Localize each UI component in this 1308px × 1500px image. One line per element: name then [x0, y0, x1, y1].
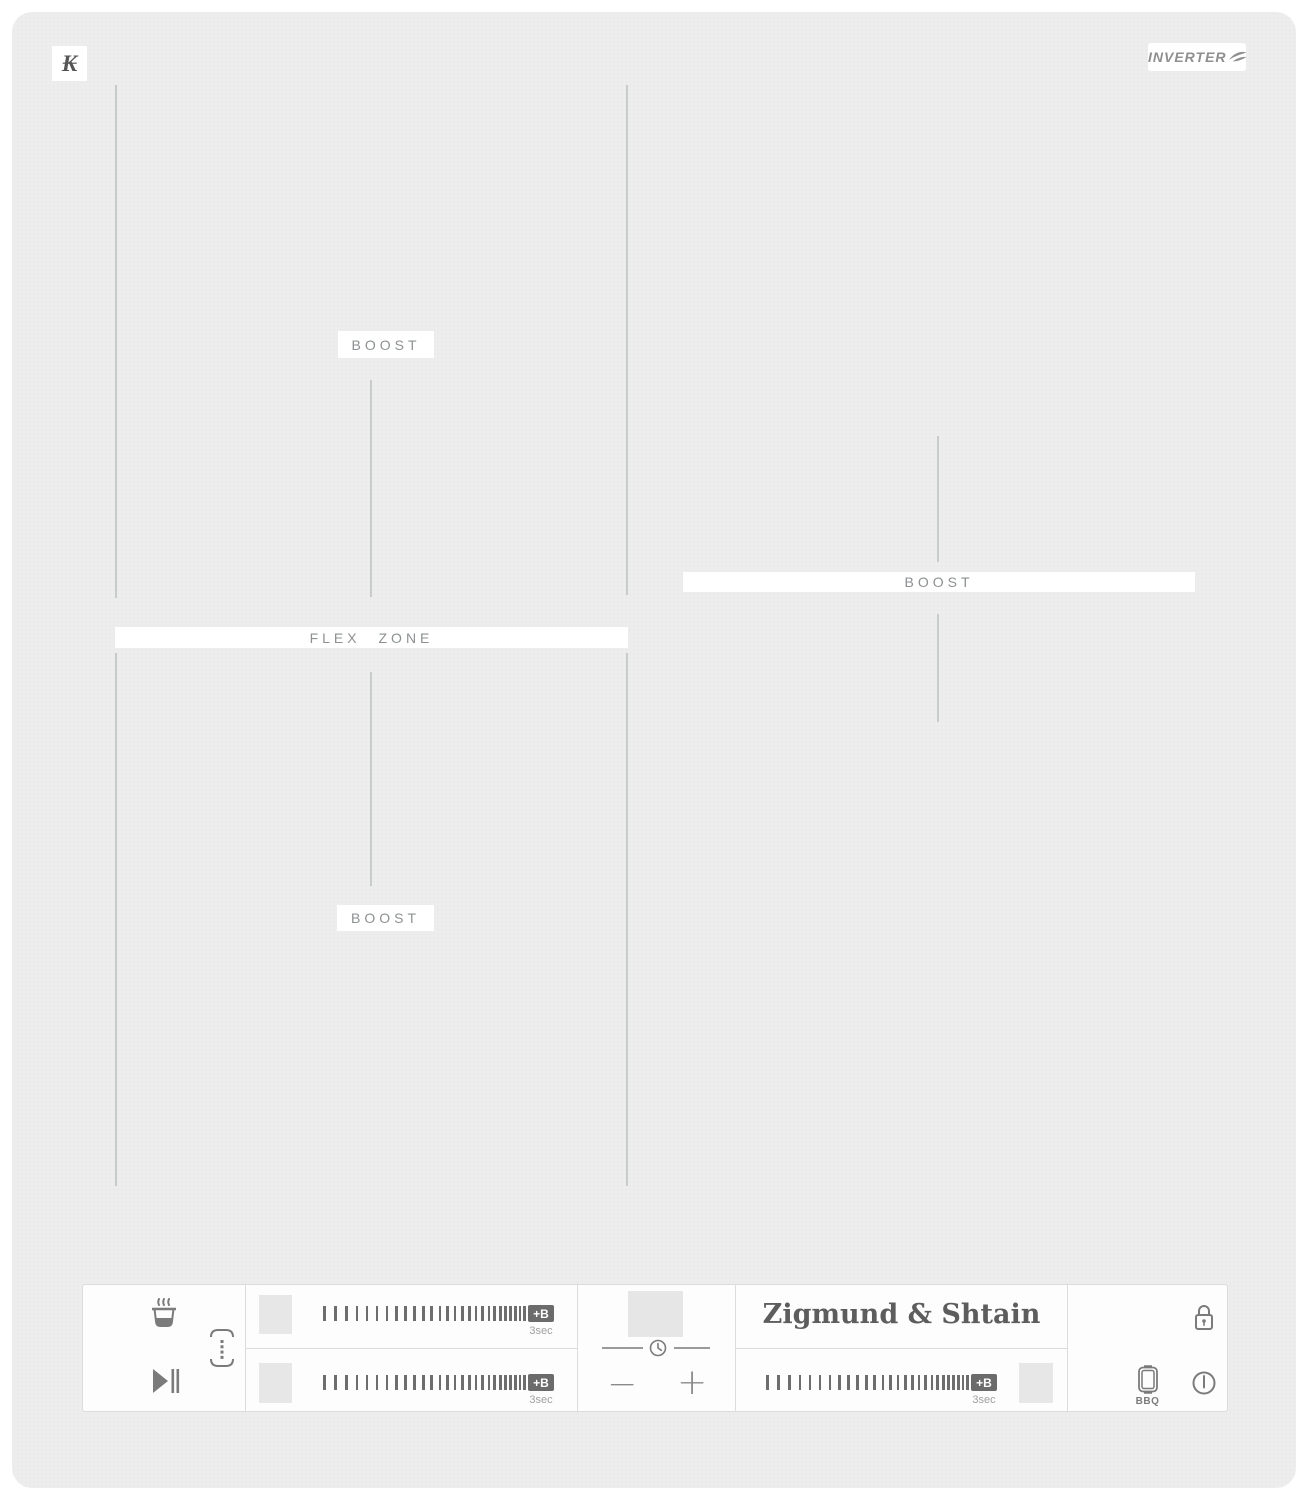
inverter-swoosh-icon [1229, 47, 1246, 67]
keep-warm-button[interactable] [146, 1297, 182, 1331]
slider-tick [323, 1306, 326, 1321]
slider-tick [430, 1375, 433, 1390]
slider-tick [889, 1375, 892, 1390]
flex-front-boost-hint-text: 3sec [529, 1325, 552, 1337]
slider-tick [766, 1375, 769, 1390]
timer-plus-button[interactable]: + [677, 1365, 707, 1401]
inverter-badge: INVERTER [1148, 43, 1246, 71]
slider-tick [488, 1306, 491, 1321]
slider-tick [395, 1375, 398, 1390]
slider-tick [882, 1375, 885, 1390]
slider-tick [962, 1375, 965, 1390]
slider-tick [847, 1375, 850, 1390]
slider-tick [799, 1375, 802, 1390]
slider-tick [931, 1375, 934, 1390]
slider-tick [829, 1375, 832, 1390]
slider-tick [422, 1375, 425, 1390]
bridge-flex-icon [209, 1327, 235, 1369]
right-zone-boost-badge-text: +B [976, 1376, 992, 1390]
child-lock-button[interactable] [1192, 1302, 1216, 1332]
slider-tick [345, 1375, 348, 1390]
slider-tick [461, 1375, 464, 1390]
slider-tick [323, 1375, 326, 1390]
slider-tick [865, 1375, 868, 1390]
slider-tick [376, 1375, 379, 1390]
right-zone-boost-hint-text: 3sec [972, 1394, 995, 1406]
slider-tick [514, 1375, 517, 1390]
timer-line-left [602, 1347, 643, 1349]
right-slider-divider [736, 1348, 1067, 1349]
timer-line-right [674, 1347, 710, 1349]
slider-tick [356, 1375, 359, 1390]
slider-tick [475, 1375, 478, 1390]
slider-tick [454, 1306, 457, 1321]
cooktop-surface [12, 12, 1296, 1488]
slider-tick [952, 1375, 955, 1390]
slider-tick [334, 1375, 337, 1390]
slider-tick [481, 1306, 484, 1321]
boost-label-top-left-text: BOOST [351, 337, 420, 353]
right-zone-power-slider[interactable] [766, 1375, 969, 1390]
flex-front-boost-badge[interactable]: +B [528, 1305, 554, 1322]
brand-logo: Zigmund & Shtain [735, 1299, 1068, 1330]
slider-tick [936, 1375, 939, 1390]
slider-tick [966, 1375, 969, 1390]
slider-tick [334, 1306, 337, 1321]
slider-tick [493, 1375, 496, 1390]
bbq-button[interactable]: BBQ [1131, 1363, 1164, 1407]
slider-tick [404, 1375, 407, 1390]
slider-tick [918, 1375, 921, 1390]
slider-tick [446, 1306, 449, 1321]
slider-tick [788, 1375, 791, 1390]
slider-tick [386, 1375, 389, 1390]
cooktop: ₭ INVERTER BOOST FLEX ZONE BOOST BOOST [0, 0, 1308, 1500]
slider-tick [413, 1375, 416, 1390]
timer-indicator [649, 1339, 667, 1357]
boost-label-right: BOOST [683, 572, 1195, 592]
control-panel: +B 3sec +B 3sec − + [82, 1284, 1228, 1412]
slider-tick [499, 1306, 502, 1321]
inverter-label: INVERTER [1148, 49, 1227, 65]
slider-tick [345, 1306, 348, 1321]
slider-tick [947, 1375, 950, 1390]
timer-minus-button[interactable]: − [607, 1367, 637, 1403]
right-zone-pad[interactable] [1019, 1363, 1053, 1403]
right-zone-boost-badge[interactable]: +B [971, 1374, 997, 1391]
boost-label-bottom-left-text: BOOST [351, 910, 420, 926]
flex-rear-boost-badge[interactable]: +B [528, 1374, 554, 1391]
slider-tick [439, 1306, 442, 1321]
slider-tick [499, 1375, 502, 1390]
slider-tick [509, 1306, 512, 1321]
pause-resume-button[interactable] [150, 1367, 180, 1395]
play-pause-icon [150, 1367, 180, 1395]
slider-tick [519, 1306, 522, 1321]
flex-front-power-slider[interactable] [323, 1306, 526, 1321]
slider-tick [838, 1375, 841, 1390]
pot-steam-icon [146, 1297, 182, 1331]
right-zone-center-line-top [937, 436, 939, 562]
flex-rear-zone-pad[interactable] [259, 1363, 292, 1403]
slider-tick [481, 1375, 484, 1390]
slider-tick [413, 1306, 416, 1321]
slider-tick [819, 1375, 822, 1390]
flex-front-boost-hint: 3sec [528, 1325, 554, 1337]
slider-tick [523, 1306, 526, 1321]
flex-zone-bottom-center-line [370, 672, 372, 886]
right-zone-boost-hint: 3sec [971, 1394, 997, 1406]
slider-tick [439, 1375, 442, 1390]
slider-tick [856, 1375, 859, 1390]
slider-tick [514, 1306, 517, 1321]
slider-tick [873, 1375, 876, 1390]
slider-tick [454, 1375, 457, 1390]
slider-tick [504, 1306, 507, 1321]
bbq-icon [1132, 1364, 1164, 1395]
flex-zone-left-line-top [115, 85, 117, 598]
flex-zone-top-center-line [370, 380, 372, 597]
slider-tick [924, 1375, 927, 1390]
flex-rear-power-slider[interactable] [323, 1375, 526, 1390]
plus-label: + [677, 1362, 707, 1403]
boost-label-top-left: BOOST [338, 331, 434, 358]
flex-zone-left-line-bottom [115, 653, 117, 1186]
slider-tick [493, 1306, 496, 1321]
flex-zone-right-line-top [626, 85, 628, 595]
flex-zone-label-text: FLEX ZONE [310, 630, 434, 646]
slider-tick [468, 1375, 471, 1390]
flex-front-zone-pad[interactable] [259, 1295, 292, 1334]
slider-tick [504, 1375, 507, 1390]
slider-tick [523, 1375, 526, 1390]
power-icon [1191, 1370, 1217, 1396]
bbq-label: BBQ [1136, 1396, 1160, 1407]
timer-display [628, 1291, 683, 1337]
flex-rear-boost-hint: 3sec [528, 1394, 554, 1406]
slider-tick [488, 1375, 491, 1390]
power-button[interactable] [1191, 1370, 1217, 1396]
flex-front-boost-badge-text: +B [533, 1307, 549, 1321]
right-zone-center-line-bottom [937, 614, 939, 722]
slider-tick [468, 1306, 471, 1321]
minus-label: − [607, 1364, 637, 1405]
brand-monogram: ₭ [52, 46, 87, 81]
slider-tick [777, 1375, 780, 1390]
slider-tick [404, 1306, 407, 1321]
slider-tick [395, 1306, 398, 1321]
flex-slider-divider [246, 1348, 577, 1349]
clock-icon [649, 1339, 667, 1357]
lock-icon [1192, 1302, 1216, 1332]
slider-tick [376, 1306, 379, 1321]
flex-slider-group [245, 1284, 578, 1412]
slider-tick [509, 1375, 512, 1390]
slider-tick [430, 1306, 433, 1321]
slider-tick [386, 1306, 389, 1321]
boost-label-bottom-left: BOOST [337, 905, 434, 931]
slider-tick [446, 1375, 449, 1390]
slider-tick [911, 1375, 914, 1390]
slider-tick [897, 1375, 900, 1390]
brand-logo-text: Zigmund & Shtain [763, 1299, 1041, 1330]
bridge-flex-button[interactable] [209, 1327, 235, 1369]
flex-zone-right-line-bottom [626, 653, 628, 1186]
slider-tick [809, 1375, 812, 1390]
slider-tick [957, 1375, 960, 1390]
slider-tick [942, 1375, 945, 1390]
slider-tick [475, 1306, 478, 1321]
slider-tick [356, 1306, 359, 1321]
brand-monogram-glyph: ₭ [62, 50, 77, 77]
slider-tick [904, 1375, 907, 1390]
flex-rear-boost-badge-text: +B [533, 1376, 549, 1390]
slider-tick [519, 1375, 522, 1390]
flex-rear-boost-hint-text: 3sec [529, 1394, 552, 1406]
slider-tick [366, 1375, 369, 1390]
slider-tick [422, 1306, 425, 1321]
flex-zone-label: FLEX ZONE [115, 627, 628, 648]
slider-tick [461, 1306, 464, 1321]
boost-label-right-text: BOOST [904, 574, 973, 590]
slider-tick [366, 1306, 369, 1321]
